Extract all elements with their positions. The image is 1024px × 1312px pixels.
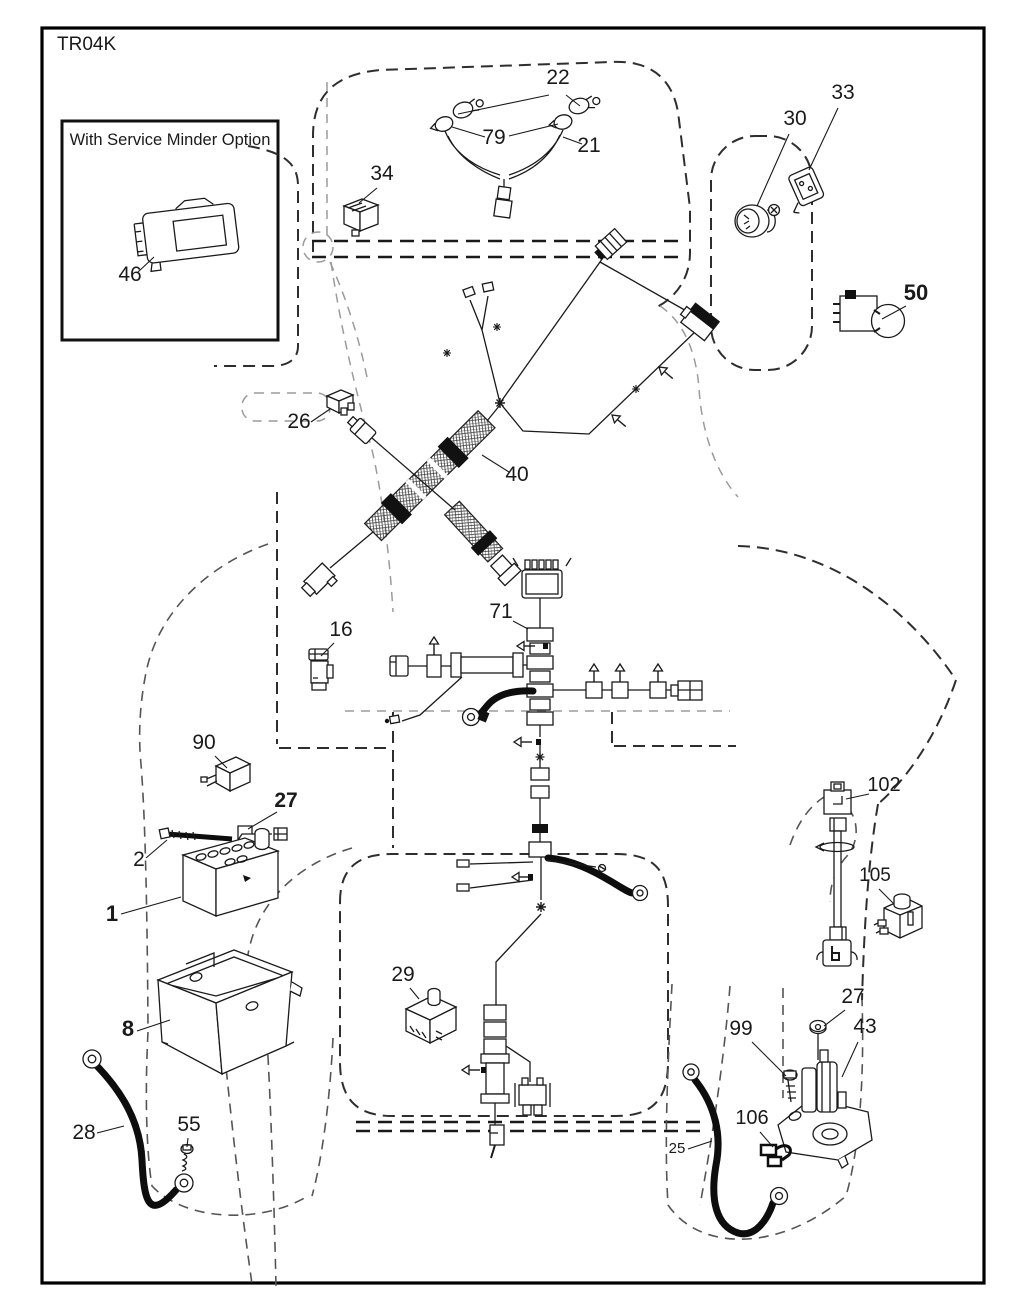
hour-meter-50	[833, 290, 905, 338]
part-callout-27: 27	[274, 789, 297, 812]
callout-leader-28	[97, 1126, 124, 1133]
callout-leader-79	[452, 127, 485, 137]
switch-16	[309, 649, 333, 690]
headlamp-bulb-left	[451, 95, 486, 121]
callout-leader-33	[809, 108, 838, 170]
part-callout-8: 8	[122, 1016, 134, 1041]
service-minder-inset: With Service Minder Option	[62, 121, 298, 366]
part-callout-50: 50	[904, 280, 928, 305]
part-callout-25: 25	[669, 1140, 686, 1157]
right-fender-outline	[738, 546, 956, 1000]
part-callout-29: 29	[391, 963, 414, 986]
harness-connector-upper-left	[345, 414, 377, 445]
callout-leader-43	[842, 1042, 858, 1077]
callout-leader-27	[248, 812, 277, 829]
part-callout-40: 40	[505, 463, 528, 486]
callout-leader-99	[752, 1042, 786, 1076]
inset-title: With Service Minder Option	[70, 131, 271, 149]
part-callout-90: 90	[192, 731, 215, 754]
part-callout-16: 16	[329, 618, 352, 641]
trunk-harness-71	[385, 558, 702, 1158]
battery-group	[159, 826, 287, 916]
light-switch-34	[344, 199, 378, 236]
main-harness-40	[300, 229, 720, 602]
part-callout-21: 21	[577, 134, 600, 157]
headlamp-bulb-right	[567, 93, 601, 116]
harness-connector-lower-left	[300, 563, 339, 602]
switch-29	[406, 989, 456, 1043]
part-callout-33: 33	[831, 81, 854, 104]
starter-solenoid-43	[778, 1050, 872, 1168]
headlamp-socket-left	[428, 114, 455, 136]
ignition-switch-30	[735, 205, 780, 238]
part-callout-1: 1	[106, 901, 118, 926]
part-callout-46: 46	[118, 263, 141, 286]
part-callout-105: 105	[859, 865, 891, 886]
callout-leader-105	[879, 889, 893, 903]
drawing-code: TR04K	[57, 34, 116, 55]
battery-box-8	[158, 950, 302, 1074]
part-callout-55: 55	[177, 1113, 200, 1136]
console-outline	[711, 136, 812, 370]
part-callout-27: 27	[841, 985, 864, 1008]
battery-1	[183, 829, 278, 917]
callout-leader-25	[688, 1141, 712, 1149]
part-callout-79: 79	[482, 126, 505, 149]
bracket-outline-26	[242, 393, 330, 421]
part-callout-71: 71	[489, 600, 512, 623]
ground-cable-short	[548, 858, 633, 893]
part-callout-106: 106	[735, 1107, 768, 1129]
part-callout-43: 43	[853, 1015, 876, 1038]
part-callout-22: 22	[546, 66, 569, 89]
headlamp-socket-right	[548, 113, 574, 133]
module-33	[779, 166, 826, 215]
relay-90	[201, 757, 250, 791]
callout-leader-27	[824, 1010, 845, 1026]
part-callout-30: 30	[783, 107, 806, 130]
frame-cross-lines	[356, 1122, 700, 1131]
callout-leader-1	[121, 897, 181, 914]
harness-connector-center	[489, 553, 521, 586]
parts-diagram-svg: TR04K With Service Minder Option	[0, 0, 1024, 1312]
callout-leader-30	[757, 134, 789, 206]
relay-26	[327, 390, 354, 415]
callout-leader-79	[509, 124, 558, 136]
callout-leader-71	[513, 621, 528, 629]
seat-switch-connector	[515, 1078, 550, 1115]
parts-diagram-page: TR04K With Service Minder Option	[0, 0, 1024, 1312]
part-callout-28: 28	[72, 1121, 95, 1144]
part-callout-26: 26	[287, 410, 310, 433]
part-callout-2: 2	[133, 848, 145, 871]
headlamp-harness	[428, 93, 601, 218]
screw-55	[181, 1145, 193, 1172]
part-callout-99: 99	[729, 1017, 752, 1040]
headlamp-connector	[497, 186, 511, 200]
part-callout-34: 34	[370, 162, 394, 185]
callout-leader-29	[410, 988, 419, 999]
solenoid-105	[874, 894, 922, 938]
part-callout-102: 102	[867, 774, 900, 796]
cable-25	[683, 1064, 788, 1234]
fuse-link-102	[816, 782, 857, 966]
callout-leader-2	[146, 840, 167, 858]
